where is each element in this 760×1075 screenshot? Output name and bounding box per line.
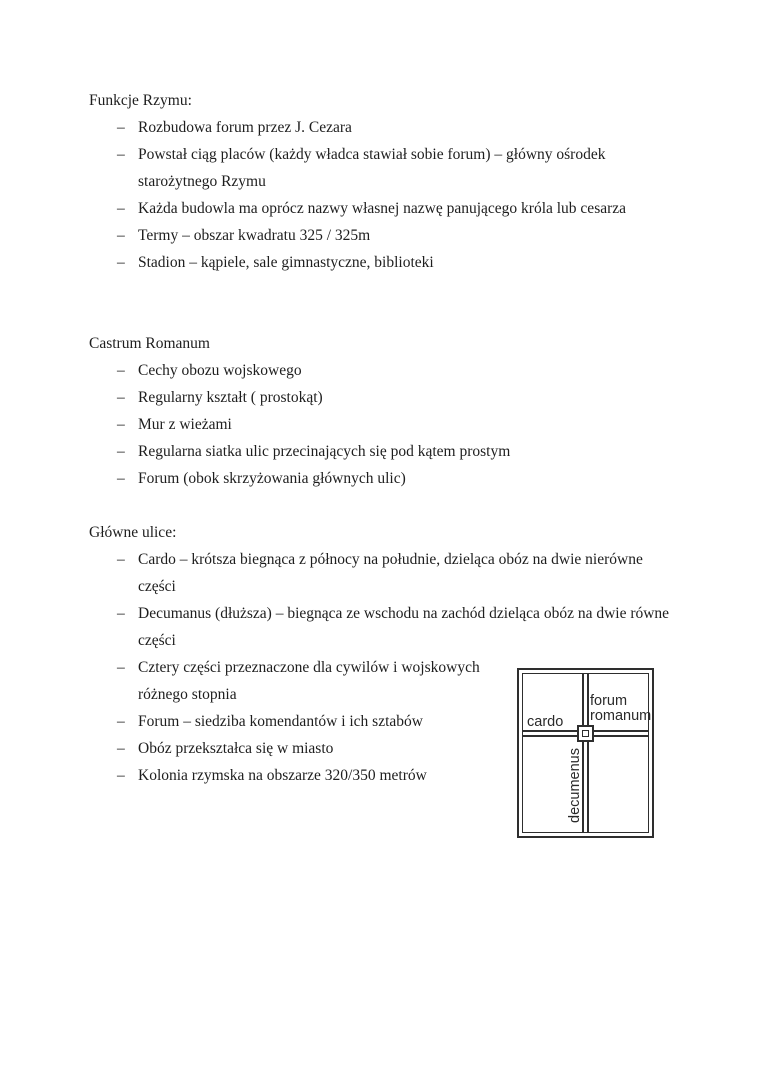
forum-inner-square [582, 730, 589, 737]
bullet-item: –Cardo – krótsza biegnąca z północy na p… [89, 546, 689, 600]
bullet-item: –Termy – obszar kwadratu 325 / 325m [89, 222, 689, 249]
bullet-dash: – [117, 114, 125, 141]
bullet-text: Każda budowla ma oprócz nazwy własnej na… [138, 200, 626, 217]
forum-square [577, 725, 594, 742]
bullet-dash: – [117, 708, 125, 735]
bullet-dash: – [117, 546, 125, 573]
label-decumanus: decumenus [568, 749, 583, 823]
section-heading-glowne-ulice: Główne ulice: [89, 519, 689, 546]
bullet-item: –Decumanus (dłuższa) – biegnąca ze wscho… [89, 600, 689, 654]
bullet-text: Cardo – krótsza biegnąca z północy na po… [138, 551, 643, 595]
bullet-item: –Stadion – kąpiele, sale gimnastyczne, b… [89, 249, 689, 276]
bullet-dash: – [117, 600, 125, 627]
bullet-text: Powstał ciąg placów (każdy władca stawia… [138, 146, 605, 190]
bullet-text: Stadion – kąpiele, sale gimnastyczne, bi… [138, 254, 434, 271]
bullet-item: –Rozbudowa forum przez J. Cezara [89, 114, 689, 141]
label-forum-romanum: forum romanum [590, 694, 651, 724]
bullet-text: Obóz przekształca się w miasto [138, 740, 333, 757]
bullet-dash: – [117, 762, 125, 789]
bullet-text: Rozbudowa forum przez J. Cezara [138, 119, 352, 136]
bullet-item: –Powstał ciąg placów (każdy władca stawi… [89, 141, 689, 195]
bullet-text: Cechy obozu wojskowego [138, 362, 302, 379]
bullet-dash: – [117, 411, 125, 438]
bullet-text: Decumanus (dłuższa) – biegnąca ze wschod… [138, 605, 669, 649]
bullet-dash: – [117, 465, 125, 492]
bullet-dash: – [117, 357, 125, 384]
castrum-diagram: cardo forum romanum decumenus [517, 668, 654, 838]
bullet-text: Regularna siatka ulic przecinających się… [138, 443, 510, 460]
bullet-text: Kolonia rzymska na obszarze 320/350 metr… [138, 767, 427, 784]
bullet-dash: – [117, 654, 125, 681]
section-heading-castrum-romanum: Castrum Romanum [89, 330, 689, 357]
section-heading-funkcje-rzymu: Funkcje Rzymu: [89, 87, 689, 114]
bullet-text: Cztery części przeznaczone dla cywilów i… [138, 659, 480, 703]
bullet-dash: – [117, 249, 125, 276]
bullet-text: Regularny kształt ( prostokąt) [138, 389, 323, 406]
bullet-item: –Cechy obozu wojskowego [89, 357, 689, 384]
label-cardo: cardo [527, 715, 563, 730]
bullet-dash: – [117, 735, 125, 762]
bullet-dash: – [117, 384, 125, 411]
bullet-item: –Regularna siatka ulic przecinających si… [89, 438, 689, 465]
bullet-text: Forum (obok skrzyżowania głównych ulic) [138, 470, 406, 487]
bullet-text: Forum – siedziba komendantów i ich sztab… [138, 713, 423, 730]
bullet-dash: – [117, 438, 125, 465]
bullet-item: –Regularny kształt ( prostokąt) [89, 384, 689, 411]
bullet-dash: – [117, 195, 125, 222]
bullet-item: –Forum (obok skrzyżowania głównych ulic) [89, 465, 689, 492]
bullet-item: –Każda budowla ma oprócz nazwy własnej n… [89, 195, 689, 222]
street-decumanus-vertical [582, 673, 589, 833]
bullet-dash: – [117, 222, 125, 249]
bullet-text: Termy – obszar kwadratu 325 / 325m [138, 227, 370, 244]
bullet-text: Mur z wieżami [138, 416, 232, 433]
bullet-item: –Mur z wieżami [89, 411, 689, 438]
bullet-dash: – [117, 141, 125, 168]
